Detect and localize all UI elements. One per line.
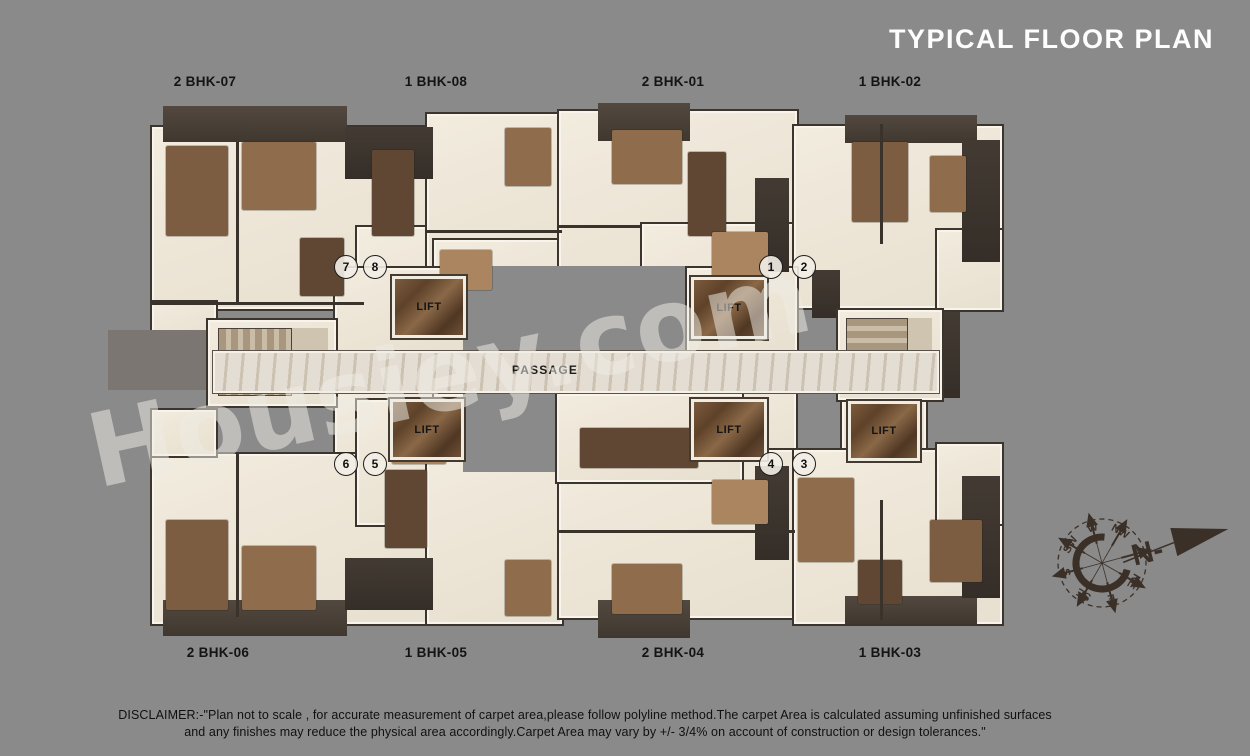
unit-number: 6	[343, 457, 350, 471]
lift-label: LIFT	[414, 424, 439, 436]
roof-strip	[163, 106, 347, 142]
furniture-block	[798, 478, 854, 562]
unit-number-badge: 7	[334, 255, 358, 279]
unit-number: 3	[801, 457, 808, 471]
lift-shaft: LIFT	[691, 399, 767, 460]
interior-wall	[557, 225, 642, 228]
furniture-block	[930, 156, 966, 212]
north-arrowhead-icon	[1170, 514, 1231, 556]
shadow-block	[108, 330, 208, 390]
unit-number-badge: 2	[792, 255, 816, 279]
background-gap	[463, 266, 685, 350]
interior-wall	[150, 302, 364, 305]
unit-number-badge: 8	[363, 255, 387, 279]
furniture-block	[166, 520, 228, 610]
background-gap	[463, 392, 555, 472]
compass-point-label: W	[1086, 521, 1100, 535]
floor-block	[150, 408, 218, 458]
floor-plan: PASSAGE LIFT LIFT LIFT LIFT LIFT 7 8 1 2…	[0, 0, 1250, 756]
roof-strip	[962, 140, 1000, 262]
furniture-block	[505, 560, 551, 616]
furniture-block	[372, 150, 414, 236]
unit-number: 8	[372, 260, 379, 274]
lift-shaft: LIFT	[691, 277, 767, 339]
lift-label: LIFT	[871, 425, 896, 437]
furniture-block	[242, 546, 316, 610]
compass-rose: N NE E SE S SW W NW N-	[1032, 488, 1242, 628]
interior-wall	[425, 230, 562, 233]
roof-strip	[845, 115, 977, 143]
unit-number-badge: 5	[363, 452, 387, 476]
furniture-block	[580, 428, 698, 468]
floor-plan-page: { "title": "TYPICAL FLOOR PLAN", "waterm…	[0, 0, 1250, 756]
roof-strip	[345, 558, 433, 610]
unit-number: 5	[372, 457, 379, 471]
unit-number: 2	[801, 260, 808, 274]
unit-number-badge: 4	[759, 452, 783, 476]
interior-wall	[557, 530, 795, 533]
furniture-block	[242, 142, 316, 210]
interior-wall	[236, 452, 239, 617]
unit-number-badge: 6	[334, 452, 358, 476]
furniture-block	[612, 564, 682, 614]
interior-wall	[880, 500, 883, 620]
unit-number: 7	[343, 260, 350, 274]
compass-point-label: NW	[1109, 522, 1131, 542]
lift-shaft: LIFT	[392, 276, 466, 338]
lift-shaft: LIFT	[848, 401, 920, 461]
unit-number: 1	[768, 260, 775, 274]
furniture-block	[505, 128, 551, 186]
unit-number-badge: 1	[759, 255, 783, 279]
unit-number: 4	[768, 457, 775, 471]
compass-north-arrow: N-	[1118, 514, 1233, 575]
compass-north-label: N-	[1128, 533, 1167, 573]
lift-label: LIFT	[716, 424, 741, 436]
furniture-block	[385, 470, 427, 548]
furniture-block	[166, 146, 228, 236]
passage-label: PASSAGE	[455, 363, 635, 377]
compass-point-label: E	[1106, 591, 1116, 604]
compass-point-label: S	[1060, 567, 1073, 577]
furniture-block	[712, 480, 768, 524]
interior-wall	[236, 142, 239, 302]
lift-label: LIFT	[716, 302, 741, 314]
furniture-block	[930, 520, 982, 582]
lift-label: LIFT	[416, 301, 441, 313]
interior-wall	[880, 124, 883, 244]
lift-shaft: LIFT	[390, 399, 464, 460]
unit-number-badge: 3	[792, 452, 816, 476]
furniture-block	[688, 152, 726, 236]
furniture-block	[612, 130, 682, 184]
